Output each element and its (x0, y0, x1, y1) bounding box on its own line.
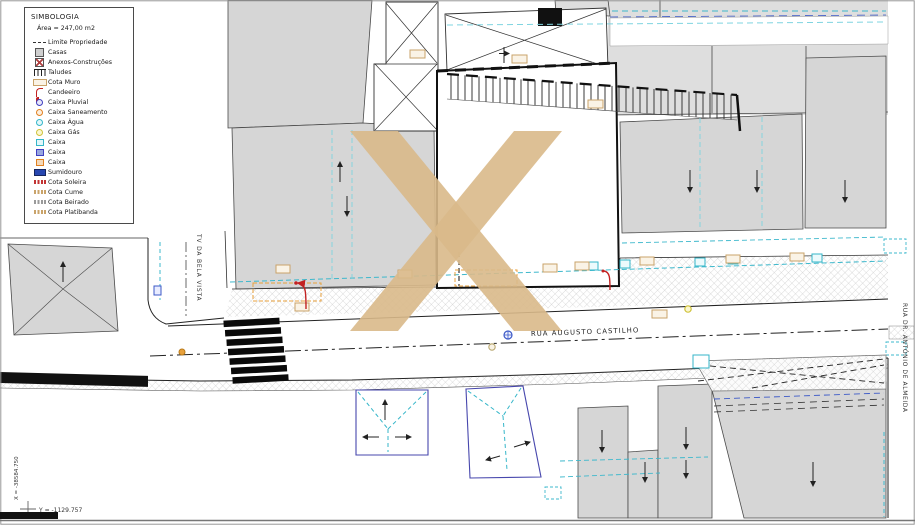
legend-item-label: Caixa (48, 159, 66, 166)
legend-item-label: Cota Soleira (48, 179, 86, 186)
legend-row: Caixa (31, 147, 130, 157)
legend-row: Candeeiro (31, 87, 130, 97)
cota-soleira-icon (31, 180, 48, 184)
legend-row: Caixa Pluvial (31, 97, 130, 107)
drawing-canvas: RUA AUGUSTO CASTILHO TV DA BELA VISTA RU… (0, 0, 915, 525)
building-far-right (805, 56, 886, 228)
parcels (356, 386, 541, 478)
cota-muro-icon (31, 79, 48, 86)
limite-propriedade-icon (31, 42, 48, 43)
legend-item-label: Limite Propriedade (48, 39, 107, 46)
legend-row: Caixa (31, 137, 130, 147)
legend-item-label: Cota Platibanda (48, 209, 98, 216)
building-right-mid (620, 114, 803, 233)
crosswalk (223, 317, 288, 384)
caixa-orange-icon (31, 159, 48, 166)
parcel-left (356, 390, 428, 455)
left-road-label: TV DA BELA VISTA (195, 233, 202, 301)
legend-row: Cota Beirado (31, 197, 130, 207)
parcel-right-tilted (466, 386, 541, 478)
x-coordinate-label: X = -38584.750 (14, 456, 20, 500)
sumidouro-icon (31, 169, 48, 176)
building-bottom-3 (658, 384, 712, 518)
taludes-icon (31, 69, 48, 76)
legend-item-label: Cota Muro (48, 79, 80, 86)
legend-row: Sumidouro (31, 167, 130, 177)
site-plan-drawing: RUA AUGUSTO CASTILHO TV DA BELA VISTA RU… (0, 0, 915, 525)
legend-row: Casas (31, 47, 130, 57)
legend-item-label: Cota Cume (48, 189, 83, 196)
legend-area-value: Área = 247,00 m2 (37, 25, 130, 32)
legend-item-label: Caixa Pluvial (48, 99, 88, 106)
legend-item-label: Sumidouro (48, 169, 82, 176)
building-bottom-1 (578, 406, 628, 518)
casas-icon (31, 48, 48, 57)
legend-row: Caixa Água (31, 117, 130, 127)
caixa-agua-icon (31, 119, 48, 126)
caixa-marker-left-street (154, 286, 161, 295)
legend-item-label: Casas (48, 49, 67, 56)
legend-row: Cota Muro (31, 77, 130, 87)
legend-row: Taludes (31, 67, 130, 77)
legend-row: Caixa Saneamento (31, 107, 130, 117)
legend-item-label: Candeeiro (48, 89, 80, 96)
legend-row: Cota Platibanda (31, 207, 130, 217)
caixa-symbol-tan (489, 344, 495, 350)
caixa-saneamento-symbol (179, 349, 185, 355)
annex-x-column (374, 2, 438, 131)
legend-row: Limite Propriedade (31, 37, 130, 47)
anexos-construcoes-icon (31, 58, 48, 67)
legend-item-label: Caixa Gás (48, 129, 80, 136)
legend-box: SIMBOLOGIA Área = 247,00 m2 Limite Propr… (24, 7, 134, 224)
legend-item-label: Caixa Água (48, 119, 84, 126)
talude-band-bottom-right (693, 326, 914, 391)
caixa-gas-icon (31, 129, 48, 136)
cota-beirado-icon (31, 200, 48, 204)
caixa-blue-icon (31, 149, 48, 156)
legend-row: Caixa (31, 157, 130, 167)
cota-platibanda-icon (31, 210, 48, 214)
cota-cume-icon (31, 190, 48, 194)
coordinate-labels: Y = -1129.757 X = -38584.750 (14, 456, 82, 517)
legend-item-label: Taludes (48, 69, 72, 76)
legend-item-label: Caixa Saneamento (48, 109, 108, 116)
black-annex-rect (538, 8, 562, 26)
legend-row: Anexos-Construções (31, 57, 130, 67)
caixa-pluvial-icon (31, 99, 48, 106)
caixa-saneamento-icon (31, 109, 48, 116)
legend-title: SIMBOLOGIA (31, 13, 130, 21)
caixa-gas-symbol (685, 306, 691, 312)
caixa-cyan-icon (31, 139, 48, 146)
legend-item-label: Cota Beirado (48, 199, 89, 206)
legend-row: Caixa Gás (31, 127, 130, 137)
building-top-left (228, 0, 372, 128)
legend-item-label: Caixa (48, 139, 66, 146)
building-bottom-2 (628, 450, 658, 518)
right-road-label: RUA DR. ANTÓNIO DE ALMEIDA (901, 303, 908, 413)
legend-row: Cota Cume (31, 187, 130, 197)
candeeiro-icon (31, 88, 48, 97)
wall-bar-bottom-left (0, 512, 58, 519)
legend-item-label: Caixa (48, 149, 66, 156)
legend-row: Cota Soleira (31, 177, 130, 187)
legend-item-label: Anexos-Construções (48, 59, 112, 66)
